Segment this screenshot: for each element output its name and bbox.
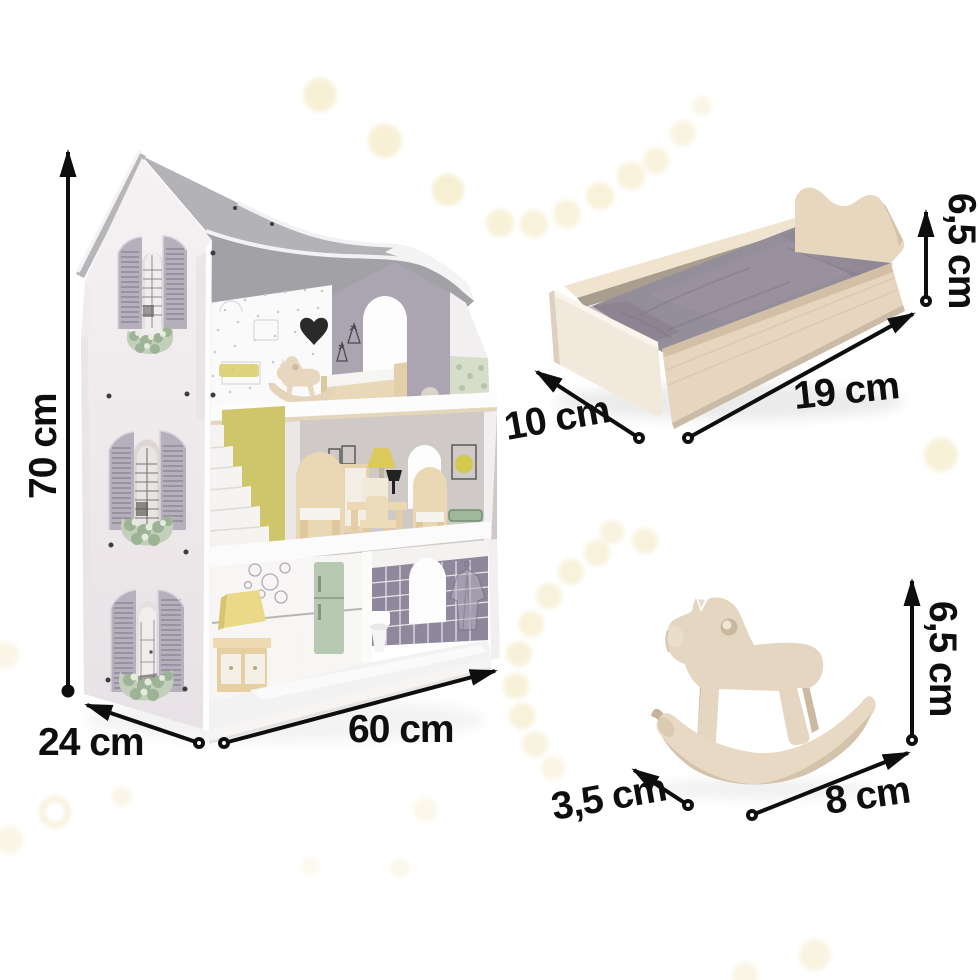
svg-text:24 cm: 24 cm xyxy=(38,721,144,764)
svg-text:60 cm: 60 cm xyxy=(348,708,454,751)
svg-text:6,5 cm: 6,5 cm xyxy=(921,601,964,716)
svg-text:70 cm: 70 cm xyxy=(22,393,65,499)
svg-text:6,5 cm: 6,5 cm xyxy=(940,193,980,308)
